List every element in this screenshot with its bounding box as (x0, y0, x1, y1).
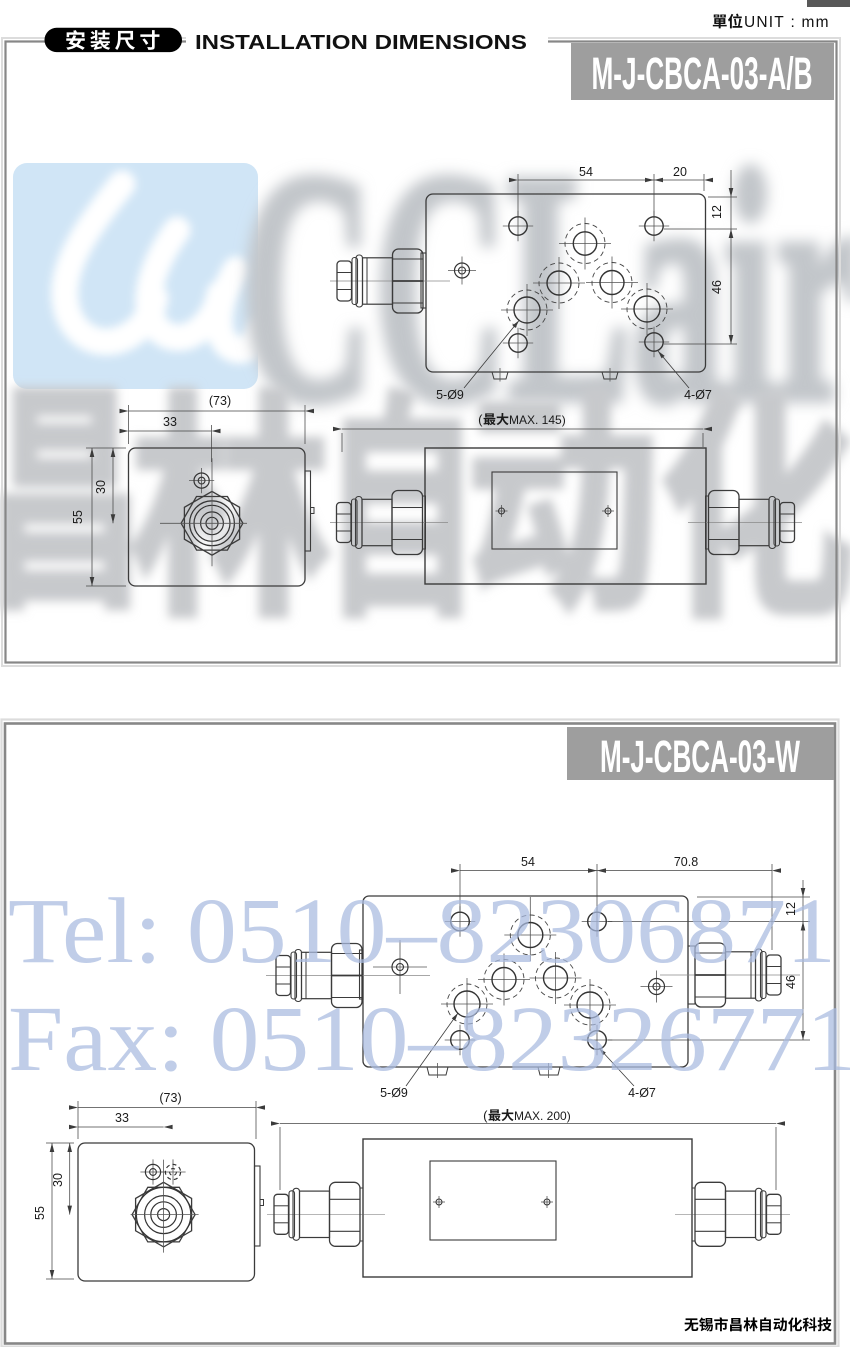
svg-text:(: ( (478, 412, 483, 427)
svg-text:(73): (73) (209, 394, 231, 408)
svg-text:33: 33 (163, 415, 177, 429)
svg-text:INSTALLATION DIMENSIONS: INSTALLATION DIMENSIONS (195, 31, 527, 54)
svg-text:4-Ø7: 4-Ø7 (684, 388, 712, 402)
svg-text:MAX. 145): MAX. 145) (509, 413, 566, 427)
svg-text:M-J-CBCA-03-W: M-J-CBCA-03-W (600, 731, 800, 782)
svg-text:5-Ø9: 5-Ø9 (436, 388, 464, 402)
svg-text:55: 55 (33, 1206, 47, 1220)
svg-text:54: 54 (521, 855, 535, 869)
svg-text:12: 12 (710, 205, 724, 219)
svg-text:UNIT : mm: UNIT : mm (744, 14, 830, 31)
svg-text:20: 20 (673, 165, 687, 179)
svg-text:46: 46 (710, 280, 724, 294)
svg-text:33: 33 (115, 1111, 129, 1125)
svg-text:54: 54 (579, 165, 593, 179)
svg-text:Tel: 0510–82306871: Tel: 0510–82306871 (8, 880, 836, 983)
svg-text:30: 30 (51, 1173, 65, 1187)
svg-text:Fax: 0510–82326771: Fax: 0510–82326771 (8, 988, 850, 1091)
svg-text:M-J-CBCA-03-A/B: M-J-CBCA-03-A/B (592, 48, 813, 99)
svg-text:(73): (73) (159, 1091, 181, 1105)
svg-text:70.8: 70.8 (674, 855, 698, 869)
svg-text:30: 30 (94, 480, 108, 494)
svg-text:(: ( (483, 1108, 488, 1123)
svg-text:55: 55 (71, 510, 85, 524)
svg-text:MAX. 200): MAX. 200) (514, 1109, 571, 1123)
